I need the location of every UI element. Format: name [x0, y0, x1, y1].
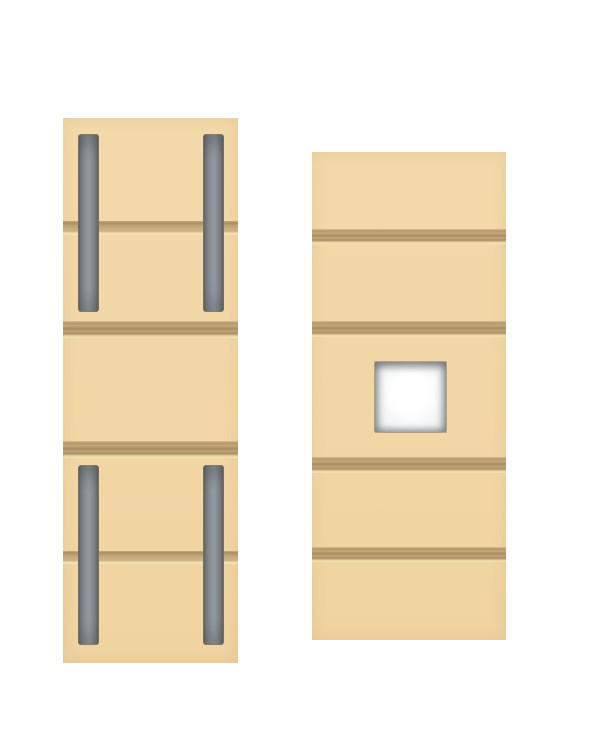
- right-panel-groove-3: [312, 457, 506, 473]
- left-panel-slot-bottom-right: [203, 465, 224, 645]
- left-panel: [63, 118, 238, 663]
- right-panel: [312, 152, 506, 640]
- left-panel-slot-top-right: [203, 134, 224, 312]
- left-panel-slot-top-left: [78, 134, 99, 312]
- right-panel-groove-1: [312, 229, 506, 244]
- right-panel-groove-4: [312, 547, 506, 562]
- left-panel-slot-bottom-left: [78, 465, 99, 645]
- render-canvas: [0, 0, 600, 738]
- left-panel-groove-3: [63, 441, 238, 458]
- right-panel-square-hole: [374, 361, 447, 433]
- left-panel-groove-2: [63, 321, 238, 338]
- right-panel-groove-2: [312, 321, 506, 337]
